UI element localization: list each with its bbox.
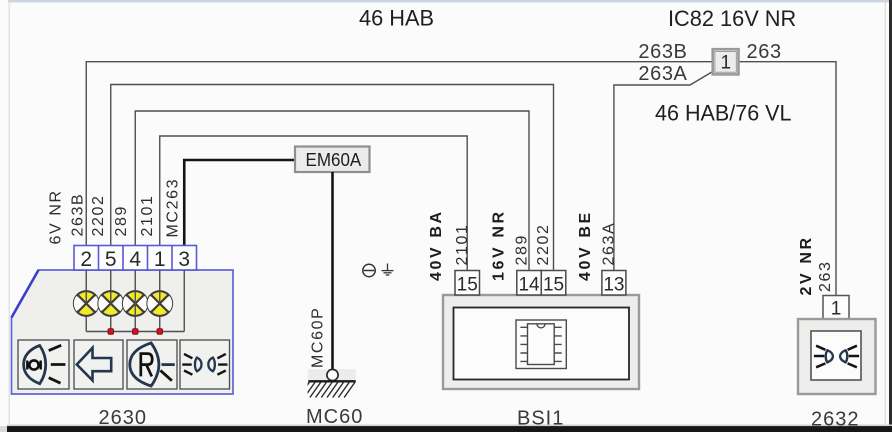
svg-text:263: 263 — [747, 41, 782, 63]
svg-text:2101: 2101 — [454, 224, 471, 266]
svg-text:6V NR: 6V NR — [48, 189, 65, 244]
svg-text:13: 13 — [603, 275, 624, 296]
svg-text:46 HAB/76 VL: 46 HAB/76 VL — [655, 100, 792, 125]
svg-text:2632: 2632 — [811, 409, 860, 431]
svg-text:16V NR: 16V NR — [491, 209, 508, 281]
svg-text:5: 5 — [105, 248, 117, 271]
svg-text:15: 15 — [457, 275, 478, 296]
svg-text:263B: 263B — [70, 193, 87, 237]
svg-text:1: 1 — [721, 53, 732, 74]
svg-text:1: 1 — [831, 299, 842, 320]
svg-text:MC60P: MC60P — [310, 307, 327, 368]
svg-text:289: 289 — [514, 234, 531, 266]
svg-text:15: 15 — [543, 275, 564, 296]
svg-text:1: 1 — [154, 248, 166, 271]
svg-text:MC60: MC60 — [306, 406, 363, 428]
svg-text:2101: 2101 — [139, 195, 156, 237]
svg-text:40V BE: 40V BE — [577, 210, 594, 281]
svg-text:2202: 2202 — [90, 195, 107, 237]
svg-text:EM60A: EM60A — [306, 149, 362, 170]
svg-text:2202: 2202 — [535, 224, 552, 266]
svg-text:BSI1: BSI1 — [517, 408, 564, 430]
svg-text:263: 263 — [817, 261, 834, 293]
svg-text:MC263: MC263 — [165, 178, 182, 238]
svg-text:2: 2 — [80, 248, 92, 271]
svg-text:IC82 16V NR: IC82 16V NR — [668, 6, 796, 31]
svg-text:46 HAB: 46 HAB — [359, 5, 434, 30]
svg-text:2V NR: 2V NR — [798, 235, 815, 295]
svg-text:289: 289 — [113, 205, 130, 237]
svg-text:4: 4 — [129, 248, 141, 271]
svg-text:263A: 263A — [600, 222, 617, 266]
svg-text:263A: 263A — [638, 63, 687, 85]
svg-text:14: 14 — [518, 275, 540, 296]
svg-text:2630: 2630 — [99, 407, 148, 429]
svg-text:263B: 263B — [638, 41, 687, 63]
svg-text:40V BA: 40V BA — [428, 209, 445, 281]
svg-text:3: 3 — [178, 248, 190, 271]
